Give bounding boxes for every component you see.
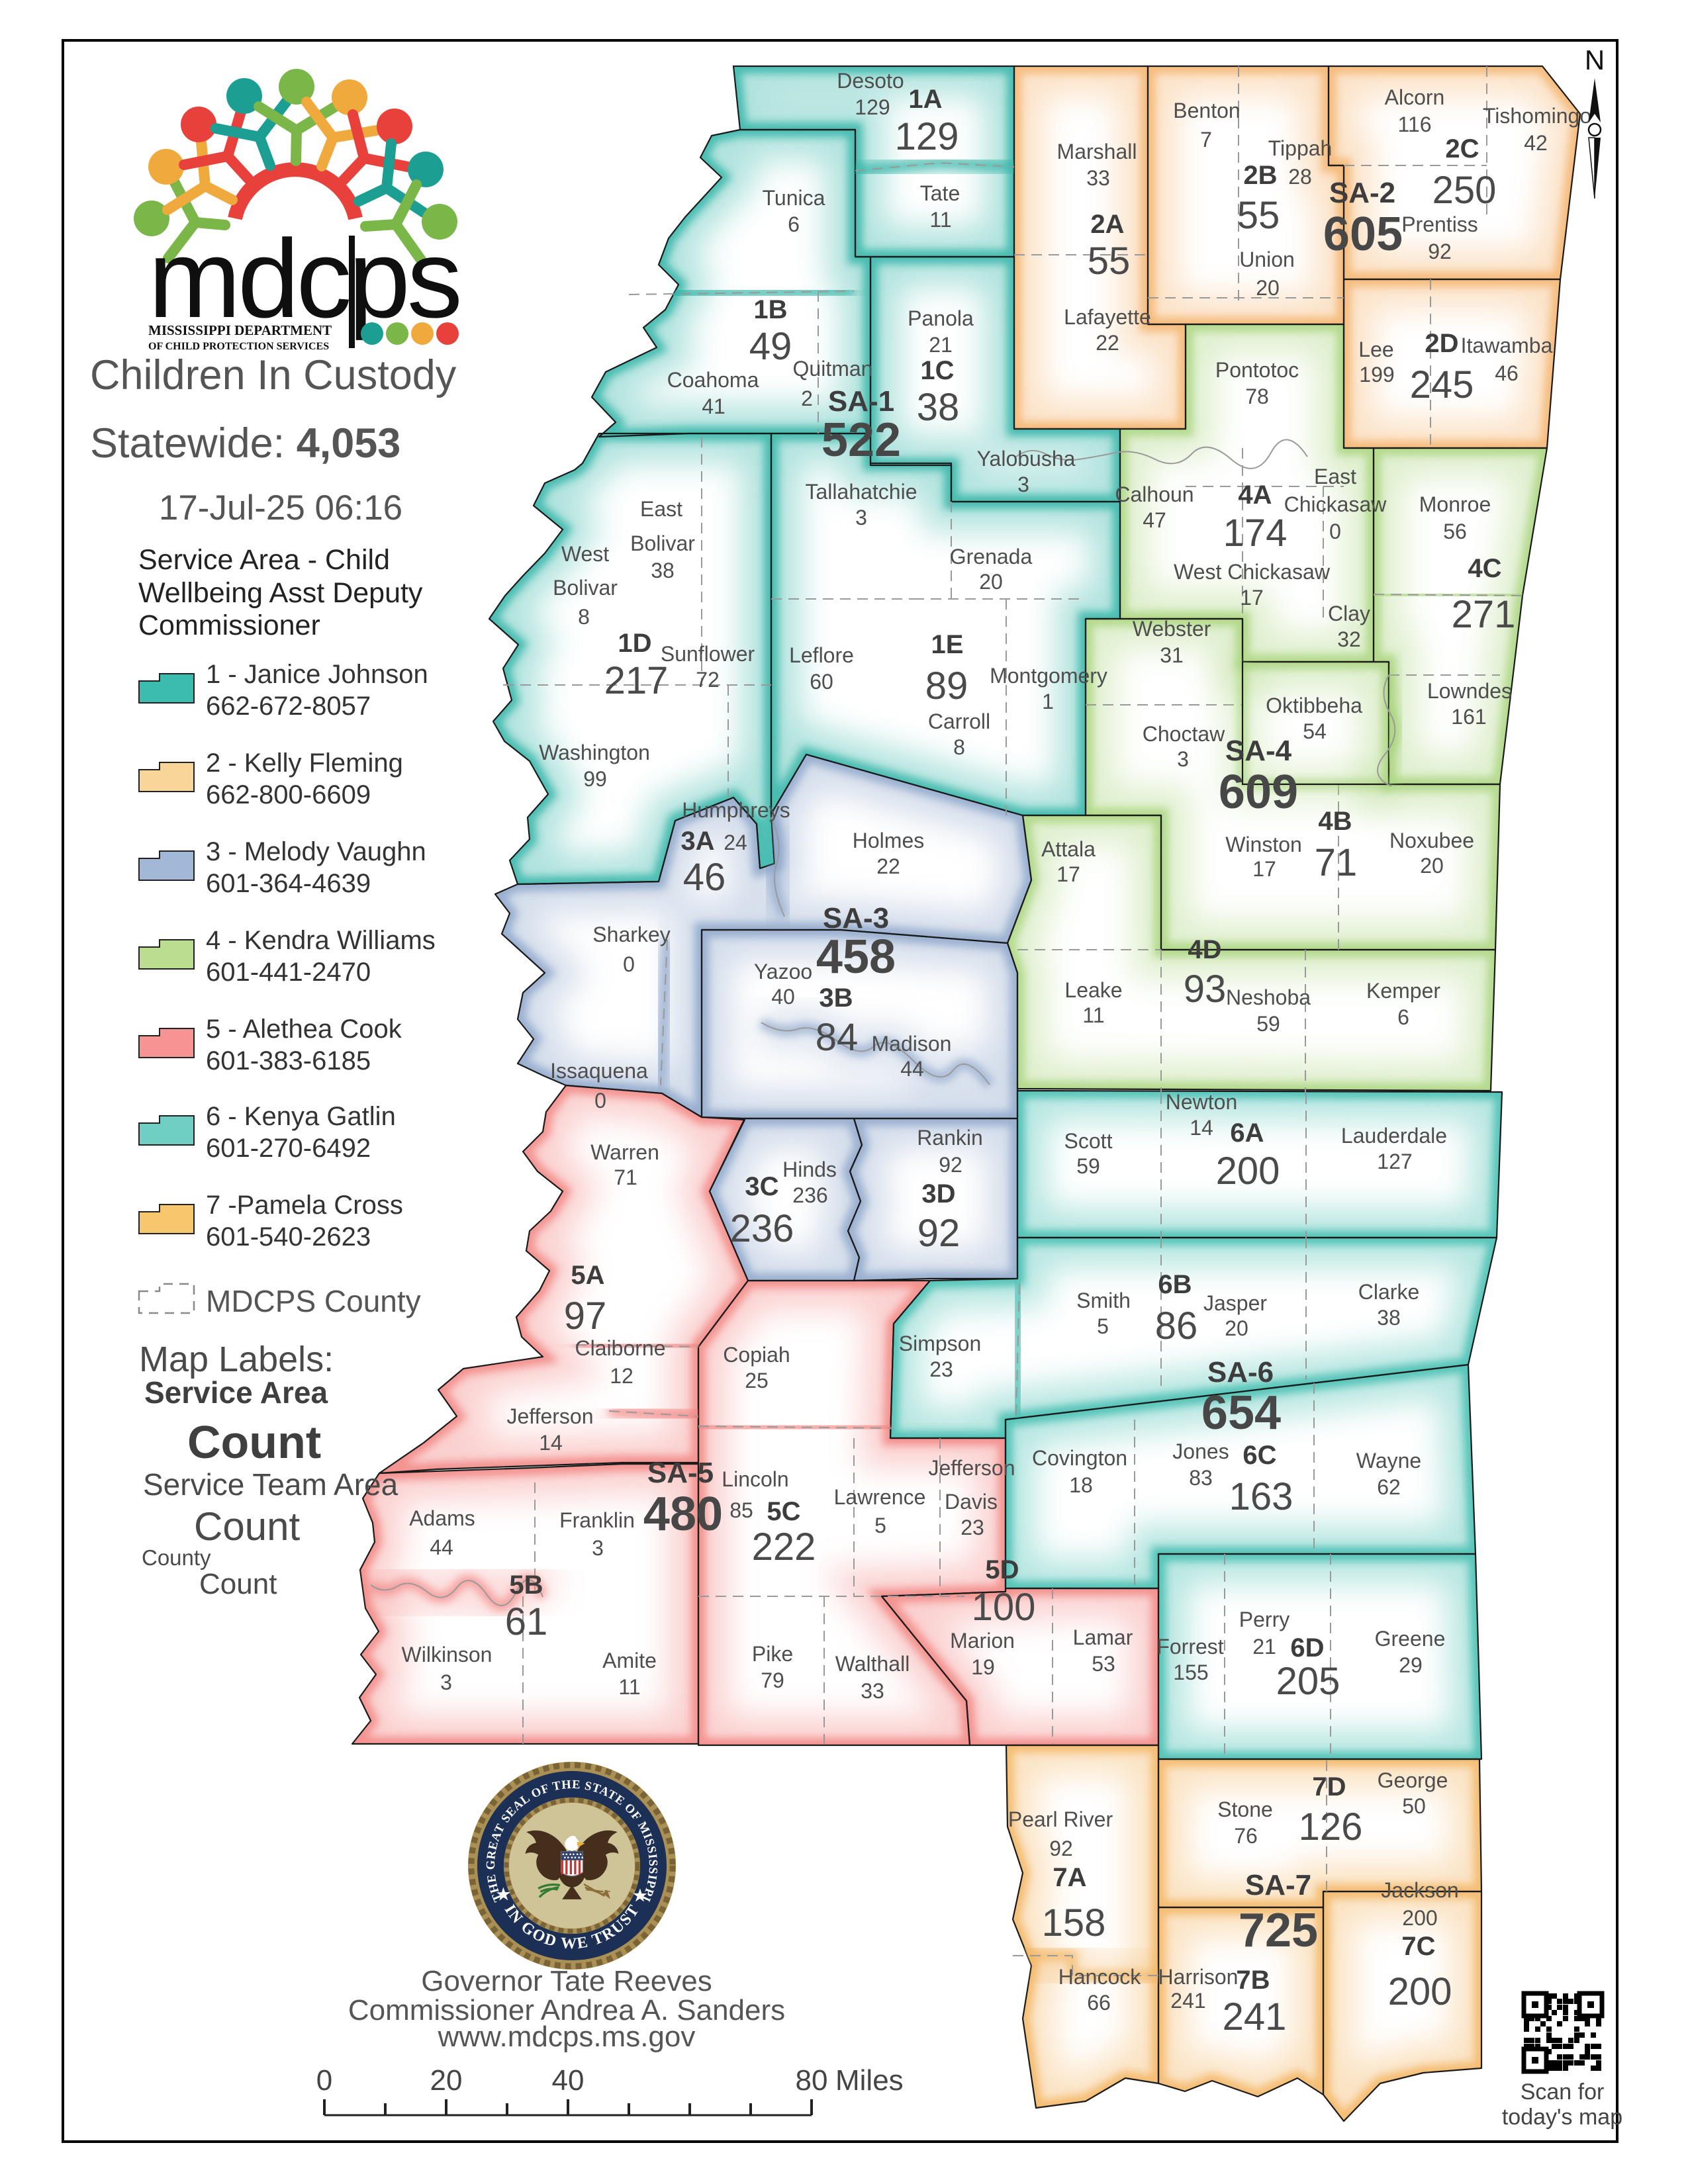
svg-text:Monroe: Monroe bbox=[1419, 492, 1491, 516]
svg-text:Humphreys: Humphreys bbox=[682, 798, 790, 822]
svg-text:Lamar: Lamar bbox=[1073, 1625, 1133, 1649]
svg-text:725: 725 bbox=[1239, 1904, 1318, 1957]
svg-text:38: 38 bbox=[1377, 1306, 1401, 1330]
svg-text:Pearl River: Pearl River bbox=[1008, 1807, 1113, 1831]
svg-text:480: 480 bbox=[643, 1488, 723, 1541]
svg-text:Bolivar: Bolivar bbox=[553, 576, 618, 600]
svg-text:4C: 4C bbox=[1468, 554, 1501, 583]
svg-text:601-364-4639: 601-364-4639 bbox=[206, 869, 371, 898]
svg-text:Quitman: Quitman bbox=[793, 357, 873, 381]
svg-text:1E: 1E bbox=[931, 630, 964, 659]
svg-text:7A: 7A bbox=[1053, 1863, 1086, 1892]
svg-text:Marion: Marion bbox=[950, 1629, 1015, 1653]
svg-text:MDCPS County: MDCPS County bbox=[206, 1284, 421, 1318]
svg-text:99: 99 bbox=[583, 767, 607, 791]
svg-text:Chickasaw: Chickasaw bbox=[1284, 492, 1387, 516]
svg-text:20: 20 bbox=[1256, 276, 1280, 300]
svg-text:6: 6 bbox=[788, 212, 800, 236]
svg-text:Rankin: Rankin bbox=[917, 1126, 983, 1150]
svg-text:601-383-6185: 601-383-6185 bbox=[206, 1046, 371, 1075]
svg-text:Grenada: Grenada bbox=[950, 545, 1033, 569]
svg-text:93: 93 bbox=[1184, 968, 1227, 1011]
svg-text:Bolivar: Bolivar bbox=[630, 531, 695, 555]
svg-text:222: 222 bbox=[752, 1525, 816, 1569]
svg-text:3D: 3D bbox=[921, 1179, 955, 1208]
svg-text:Davis: Davis bbox=[945, 1490, 998, 1514]
svg-text:20: 20 bbox=[979, 570, 1003, 594]
svg-text:Noxubee: Noxubee bbox=[1389, 829, 1474, 852]
svg-text:Yazoo: Yazoo bbox=[754, 960, 812, 983]
svg-text:Forrest: Forrest bbox=[1156, 1635, 1223, 1659]
svg-text:609: 609 bbox=[1219, 766, 1298, 819]
svg-text:Tallahatchie: Tallahatchie bbox=[806, 480, 917, 504]
svg-text:Children In Custody: Children In Custody bbox=[90, 352, 457, 398]
svg-text:Harrison: Harrison bbox=[1158, 1965, 1239, 1989]
svg-text:Claiborne: Claiborne bbox=[575, 1336, 666, 1360]
svg-text:245: 245 bbox=[1410, 363, 1474, 406]
svg-text:Stone: Stone bbox=[1217, 1797, 1273, 1821]
svg-text:1 - Janice Johnson: 1 - Janice Johnson bbox=[206, 660, 428, 689]
svg-text:Lawrence: Lawrence bbox=[834, 1485, 926, 1509]
svg-text:7D: 7D bbox=[1312, 1772, 1346, 1801]
svg-text:Calhoun: Calhoun bbox=[1115, 482, 1194, 506]
svg-text:Lafayette: Lafayette bbox=[1064, 305, 1151, 329]
svg-text:Itawamba: Itawamba bbox=[1461, 334, 1553, 357]
svg-text:Jefferson: Jefferson bbox=[506, 1404, 593, 1428]
svg-text:662-672-8057: 662-672-8057 bbox=[206, 692, 371, 721]
svg-text:2D: 2D bbox=[1425, 329, 1458, 358]
svg-text:Covington: Covington bbox=[1032, 1446, 1127, 1470]
svg-text:Service Area - Child: Service Area - Child bbox=[138, 544, 390, 576]
svg-text:Count: Count bbox=[199, 1568, 277, 1600]
svg-text:71: 71 bbox=[614, 1165, 637, 1189]
svg-text:23: 23 bbox=[929, 1357, 953, 1381]
svg-text:SA-4: SA-4 bbox=[1225, 735, 1292, 767]
svg-text:3C: 3C bbox=[745, 1172, 778, 1201]
svg-text:12: 12 bbox=[610, 1364, 633, 1388]
svg-text:Pontotoc: Pontotoc bbox=[1215, 358, 1299, 382]
svg-text:SA-3: SA-3 bbox=[823, 902, 889, 934]
svg-text:3: 3 bbox=[1017, 473, 1029, 496]
svg-text:86: 86 bbox=[1155, 1304, 1198, 1347]
svg-text:236: 236 bbox=[792, 1183, 827, 1207]
svg-text:601-270-6492: 601-270-6492 bbox=[206, 1134, 371, 1163]
svg-text:22: 22 bbox=[1096, 331, 1119, 355]
svg-text:127: 127 bbox=[1377, 1150, 1412, 1173]
svg-text:Montgomery: Montgomery bbox=[990, 664, 1107, 688]
svg-text:6: 6 bbox=[1397, 1005, 1409, 1029]
svg-text:20: 20 bbox=[1225, 1316, 1248, 1340]
svg-text:Tate: Tate bbox=[920, 181, 960, 205]
svg-text:3A: 3A bbox=[680, 827, 714, 856]
svg-text:80: 80 bbox=[796, 2064, 828, 2097]
svg-text:Copiah: Copiah bbox=[723, 1343, 790, 1367]
svg-text:today's map: today's map bbox=[1502, 2105, 1622, 2130]
svg-text:20: 20 bbox=[430, 2064, 463, 2097]
svg-text:George: George bbox=[1378, 1768, 1448, 1792]
svg-text:92: 92 bbox=[1049, 1837, 1073, 1860]
svg-text:47: 47 bbox=[1143, 508, 1166, 532]
svg-text:605: 605 bbox=[1323, 208, 1403, 261]
svg-text:Panola: Panola bbox=[908, 306, 974, 330]
svg-text:MISSISSIPPI DEPARTMENT: MISSISSIPPI DEPARTMENT bbox=[148, 322, 332, 338]
svg-text:4D: 4D bbox=[1188, 935, 1221, 964]
svg-text:N: N bbox=[1585, 44, 1605, 75]
svg-text:5 - Alethea Cook: 5 - Alethea Cook bbox=[206, 1015, 402, 1044]
svg-text:5B: 5B bbox=[509, 1570, 543, 1600]
svg-text:38: 38 bbox=[651, 559, 675, 582]
svg-text:20: 20 bbox=[1420, 854, 1444, 878]
svg-text:0: 0 bbox=[316, 2064, 332, 2097]
svg-text:Oktibbeha: Oktibbeha bbox=[1266, 694, 1362, 717]
svg-text:Washington: Washington bbox=[539, 741, 650, 764]
svg-text:6C: 6C bbox=[1243, 1441, 1276, 1470]
svg-text:3B: 3B bbox=[819, 983, 853, 1013]
svg-text:23: 23 bbox=[961, 1516, 984, 1539]
svg-text:129: 129 bbox=[855, 95, 890, 119]
svg-text:Jasper: Jasper bbox=[1203, 1291, 1267, 1315]
svg-text:Greene: Greene bbox=[1375, 1627, 1446, 1651]
svg-text:205: 205 bbox=[1276, 1660, 1340, 1703]
svg-text:Hinds: Hinds bbox=[782, 1158, 837, 1181]
svg-text:1A: 1A bbox=[908, 85, 942, 114]
svg-text:Madison: Madison bbox=[872, 1032, 952, 1056]
svg-text:West: West bbox=[561, 542, 609, 566]
svg-text:Clarke: Clarke bbox=[1358, 1280, 1419, 1304]
svg-text:55: 55 bbox=[1088, 240, 1131, 283]
svg-text:Wilkinson: Wilkinson bbox=[402, 1643, 492, 1666]
svg-text:6B: 6B bbox=[1158, 1270, 1192, 1299]
svg-text:46: 46 bbox=[1495, 361, 1519, 385]
svg-text:6 - Kenya Gatlin: 6 - Kenya Gatlin bbox=[206, 1102, 396, 1131]
svg-text:3: 3 bbox=[440, 1670, 452, 1694]
svg-text:271: 271 bbox=[1452, 593, 1516, 636]
svg-text:Adams: Adams bbox=[409, 1506, 475, 1530]
svg-text:174: 174 bbox=[1223, 512, 1288, 555]
svg-text:Yalobusha: Yalobusha bbox=[977, 447, 1076, 471]
svg-text:Leflore: Leflore bbox=[789, 643, 854, 667]
svg-text:85: 85 bbox=[729, 1498, 753, 1522]
svg-text:83: 83 bbox=[1189, 1466, 1213, 1490]
svg-text:5: 5 bbox=[874, 1514, 886, 1537]
svg-text:41: 41 bbox=[702, 394, 726, 418]
svg-text:42: 42 bbox=[1524, 131, 1548, 155]
svg-text:199: 199 bbox=[1359, 363, 1394, 387]
svg-text:1B: 1B bbox=[753, 295, 787, 324]
svg-text:Jones: Jones bbox=[1172, 1439, 1229, 1463]
svg-text:3: 3 bbox=[592, 1536, 604, 1560]
svg-text:601-441-2470: 601-441-2470 bbox=[206, 958, 371, 987]
svg-text:11: 11 bbox=[1082, 1003, 1104, 1027]
svg-text:78: 78 bbox=[1245, 385, 1269, 408]
svg-text:Lee: Lee bbox=[1358, 338, 1393, 361]
svg-text:241: 241 bbox=[1223, 1995, 1287, 2038]
svg-text:Walthall: Walthall bbox=[835, 1652, 910, 1676]
svg-text:East: East bbox=[640, 497, 682, 521]
svg-text:100: 100 bbox=[972, 1586, 1036, 1629]
svg-text:49: 49 bbox=[749, 325, 792, 368]
svg-text:0: 0 bbox=[594, 1089, 606, 1113]
svg-text:Kemper: Kemper bbox=[1366, 979, 1440, 1003]
svg-text:33: 33 bbox=[1086, 166, 1110, 190]
svg-text:Winston: Winston bbox=[1225, 833, 1302, 856]
svg-text:www.mdcps.ms.gov: www.mdcps.ms.gov bbox=[438, 2021, 696, 2053]
svg-text:62: 62 bbox=[1377, 1475, 1401, 1499]
svg-text:Service Area: Service Area bbox=[144, 1375, 328, 1410]
svg-text:126: 126 bbox=[1299, 1805, 1363, 1848]
svg-text:97: 97 bbox=[564, 1295, 607, 1338]
svg-text:Service Team Area: Service Team Area bbox=[143, 1467, 399, 1502]
svg-text:Clay: Clay bbox=[1328, 602, 1370, 625]
svg-text:Alcorn: Alcorn bbox=[1385, 85, 1445, 109]
svg-text:1C: 1C bbox=[920, 356, 954, 385]
svg-text:Carroll: Carroll bbox=[928, 709, 990, 733]
svg-text:7 -Pamela Cross: 7 -Pamela Cross bbox=[206, 1191, 403, 1220]
svg-text:14: 14 bbox=[539, 1431, 563, 1455]
svg-text:8: 8 bbox=[953, 735, 965, 759]
svg-text:158: 158 bbox=[1042, 1901, 1106, 1944]
svg-text:Attala: Attala bbox=[1041, 837, 1096, 861]
svg-text:33: 33 bbox=[861, 1679, 884, 1703]
svg-text:Lincoln: Lincoln bbox=[722, 1467, 788, 1491]
svg-text:Commissioner: Commissioner bbox=[138, 610, 320, 641]
svg-text:522: 522 bbox=[821, 414, 901, 467]
svg-text:0: 0 bbox=[623, 952, 635, 976]
svg-text:Perry: Perry bbox=[1239, 1608, 1289, 1631]
svg-text:Smith: Smith bbox=[1076, 1289, 1131, 1312]
svg-text:Amite: Amite bbox=[602, 1649, 657, 1672]
svg-text:66: 66 bbox=[1087, 1991, 1111, 2015]
svg-text:24: 24 bbox=[724, 831, 747, 854]
svg-text:4A: 4A bbox=[1238, 480, 1272, 510]
svg-text:East: East bbox=[1314, 465, 1356, 488]
svg-text:Count: Count bbox=[187, 1416, 321, 1468]
svg-text:Tunica: Tunica bbox=[763, 186, 825, 210]
svg-text:Prentiss: Prentiss bbox=[1401, 212, 1478, 236]
svg-text:50: 50 bbox=[1402, 1794, 1426, 1818]
svg-text:46: 46 bbox=[683, 856, 726, 899]
svg-text:11: 11 bbox=[618, 1675, 640, 1699]
svg-text:3: 3 bbox=[855, 506, 867, 529]
svg-text:Choctaw: Choctaw bbox=[1143, 722, 1225, 746]
svg-text:28: 28 bbox=[1288, 165, 1312, 189]
svg-text:4B: 4B bbox=[1318, 807, 1352, 836]
svg-text:18: 18 bbox=[1069, 1473, 1093, 1497]
svg-text:5A: 5A bbox=[571, 1261, 604, 1290]
svg-text:53: 53 bbox=[1092, 1652, 1115, 1676]
svg-text:200: 200 bbox=[1402, 1906, 1437, 1930]
svg-text:Neshoba: Neshoba bbox=[1226, 985, 1311, 1009]
svg-text:11: 11 bbox=[929, 208, 951, 232]
svg-text:14: 14 bbox=[1190, 1116, 1213, 1140]
svg-text:25: 25 bbox=[745, 1369, 769, 1392]
svg-text:89: 89 bbox=[925, 664, 968, 707]
svg-text:SA-1: SA-1 bbox=[828, 385, 894, 418]
svg-text:236: 236 bbox=[730, 1207, 794, 1250]
svg-text:59: 59 bbox=[1076, 1154, 1100, 1178]
svg-text:32: 32 bbox=[1337, 627, 1361, 651]
svg-text:155: 155 bbox=[1173, 1661, 1208, 1684]
svg-text:Sharkey: Sharkey bbox=[592, 923, 670, 946]
svg-text:Issaquena: Issaquena bbox=[550, 1059, 648, 1083]
svg-text:3 - Melody Vaughn: 3 - Melody Vaughn bbox=[206, 837, 426, 866]
svg-text:Newton: Newton bbox=[1166, 1090, 1238, 1114]
svg-text:Scan for: Scan for bbox=[1521, 2079, 1605, 2105]
svg-text:17: 17 bbox=[1252, 857, 1276, 881]
svg-text:458: 458 bbox=[816, 931, 896, 983]
svg-text:2C: 2C bbox=[1445, 134, 1479, 163]
svg-text:7C: 7C bbox=[1401, 1932, 1435, 1961]
svg-text:60: 60 bbox=[810, 670, 833, 694]
svg-text:5: 5 bbox=[1097, 1314, 1109, 1338]
svg-text:654: 654 bbox=[1201, 1387, 1281, 1439]
svg-text:County: County bbox=[142, 1545, 211, 1570]
svg-text:Count: Count bbox=[194, 1504, 300, 1549]
svg-text:2A: 2A bbox=[1090, 210, 1124, 239]
svg-text:44: 44 bbox=[430, 1535, 453, 1559]
svg-text:Map Labels:: Map Labels: bbox=[139, 1340, 334, 1379]
svg-text:59: 59 bbox=[1256, 1012, 1280, 1036]
svg-text:Governor Tate Reeves: Governor Tate Reeves bbox=[421, 1965, 712, 1997]
svg-text:2 - Kelly Fleming: 2 - Kelly Fleming bbox=[206, 749, 403, 778]
svg-text:SA-6: SA-6 bbox=[1207, 1356, 1274, 1388]
svg-text:92: 92 bbox=[917, 1212, 961, 1255]
svg-text:662-800-6609: 662-800-6609 bbox=[206, 780, 371, 809]
svg-text:31: 31 bbox=[1160, 643, 1184, 667]
svg-text:Jackson: Jackson bbox=[1381, 1878, 1458, 1902]
svg-text:19: 19 bbox=[971, 1655, 995, 1679]
svg-text:38: 38 bbox=[917, 386, 960, 429]
svg-text:Marshall: Marshall bbox=[1057, 140, 1137, 163]
svg-text:7B: 7B bbox=[1236, 1966, 1270, 1995]
svg-text:116: 116 bbox=[1397, 113, 1431, 136]
svg-text:Pike: Pike bbox=[752, 1642, 793, 1666]
svg-text:4 - Kendra Williams: 4 - Kendra Williams bbox=[206, 926, 436, 955]
svg-text:7: 7 bbox=[1200, 128, 1212, 152]
svg-text:22: 22 bbox=[876, 854, 900, 878]
svg-text:Miles: Miles bbox=[835, 2064, 904, 2097]
svg-text:Webster: Webster bbox=[1133, 617, 1211, 641]
svg-text:Tippah: Tippah bbox=[1268, 136, 1333, 160]
svg-text:200: 200 bbox=[1216, 1150, 1280, 1193]
svg-text:8: 8 bbox=[578, 605, 590, 629]
svg-text:92: 92 bbox=[939, 1153, 962, 1177]
svg-text:79: 79 bbox=[761, 1668, 784, 1692]
svg-text:200: 200 bbox=[1388, 1970, 1452, 2013]
svg-text:17: 17 bbox=[1056, 862, 1080, 886]
svg-text:Jefferson: Jefferson bbox=[928, 1456, 1015, 1480]
svg-text:40: 40 bbox=[771, 985, 795, 1009]
svg-text:2B: 2B bbox=[1243, 161, 1277, 190]
svg-text:Coahoma: Coahoma bbox=[667, 368, 759, 392]
svg-text:Hancock: Hancock bbox=[1058, 1965, 1142, 1989]
svg-text:Benton: Benton bbox=[1173, 99, 1240, 122]
svg-text:Lowndes: Lowndes bbox=[1427, 679, 1512, 703]
svg-text:SA-7: SA-7 bbox=[1245, 1869, 1311, 1901]
svg-text:Lauderdale: Lauderdale bbox=[1341, 1124, 1447, 1148]
svg-text:5D: 5D bbox=[985, 1555, 1019, 1584]
svg-text:Simpson: Simpson bbox=[899, 1332, 982, 1355]
svg-text:241: 241 bbox=[1170, 1989, 1205, 2013]
svg-text:3: 3 bbox=[1177, 747, 1189, 771]
svg-text:2: 2 bbox=[801, 387, 813, 410]
svg-text:Wellbeing Asst Deputy: Wellbeing Asst Deputy bbox=[138, 577, 423, 609]
svg-text:Union: Union bbox=[1239, 248, 1295, 271]
svg-text:SA-2: SA-2 bbox=[1329, 177, 1395, 209]
svg-text:84: 84 bbox=[816, 1016, 859, 1059]
svg-text:0: 0 bbox=[1329, 520, 1341, 543]
svg-text:21: 21 bbox=[1252, 1635, 1276, 1659]
svg-text:40: 40 bbox=[552, 2064, 585, 2097]
svg-text:217: 217 bbox=[604, 659, 669, 702]
svg-text:6D: 6D bbox=[1290, 1633, 1324, 1662]
svg-text:6A: 6A bbox=[1230, 1118, 1264, 1148]
svg-text:129: 129 bbox=[895, 115, 959, 158]
svg-text:Franklin: Franklin bbox=[559, 1508, 635, 1532]
svg-text:163: 163 bbox=[1229, 1475, 1293, 1518]
svg-text:17-Jul-25 06:16: 17-Jul-25 06:16 bbox=[159, 488, 402, 527]
svg-text:SA-5: SA-5 bbox=[647, 1457, 714, 1489]
svg-text:17: 17 bbox=[1240, 586, 1264, 610]
svg-text:1D: 1D bbox=[618, 629, 651, 658]
svg-text:1: 1 bbox=[1042, 690, 1054, 713]
svg-text:Statewide: 4,053: Statewide: 4,053 bbox=[90, 420, 400, 467]
svg-text:92: 92 bbox=[1428, 240, 1452, 263]
svg-text:21: 21 bbox=[929, 333, 953, 357]
svg-text:71: 71 bbox=[1315, 841, 1358, 884]
svg-text:61: 61 bbox=[505, 1600, 548, 1643]
svg-text:OF CHILD PROTECTION SERVICES: OF CHILD PROTECTION SERVICES bbox=[148, 341, 329, 352]
svg-text:55: 55 bbox=[1237, 194, 1280, 237]
svg-text:Holmes: Holmes bbox=[853, 829, 924, 852]
svg-text:601-540-2623: 601-540-2623 bbox=[206, 1222, 371, 1251]
svg-text:250: 250 bbox=[1432, 169, 1497, 212]
svg-text:29: 29 bbox=[1399, 1653, 1423, 1677]
svg-text:76: 76 bbox=[1234, 1824, 1258, 1848]
svg-text:Sunflower: Sunflower bbox=[661, 642, 755, 666]
svg-text:Warren: Warren bbox=[590, 1140, 659, 1164]
svg-text:Leake: Leake bbox=[1064, 978, 1122, 1002]
svg-text:Tishomingo: Tishomingo bbox=[1483, 104, 1591, 128]
svg-text:54: 54 bbox=[1303, 719, 1327, 743]
svg-text:West Chickasaw: West Chickasaw bbox=[1174, 560, 1331, 584]
svg-text:5C: 5C bbox=[767, 1497, 800, 1526]
svg-text:Desoto: Desoto bbox=[837, 69, 904, 93]
svg-text:44: 44 bbox=[900, 1057, 924, 1081]
svg-text:72: 72 bbox=[696, 668, 720, 692]
svg-text:Wayne: Wayne bbox=[1356, 1449, 1421, 1473]
svg-text:161: 161 bbox=[1451, 705, 1486, 729]
svg-text:Scott: Scott bbox=[1064, 1129, 1113, 1153]
svg-text:56: 56 bbox=[1443, 520, 1467, 543]
